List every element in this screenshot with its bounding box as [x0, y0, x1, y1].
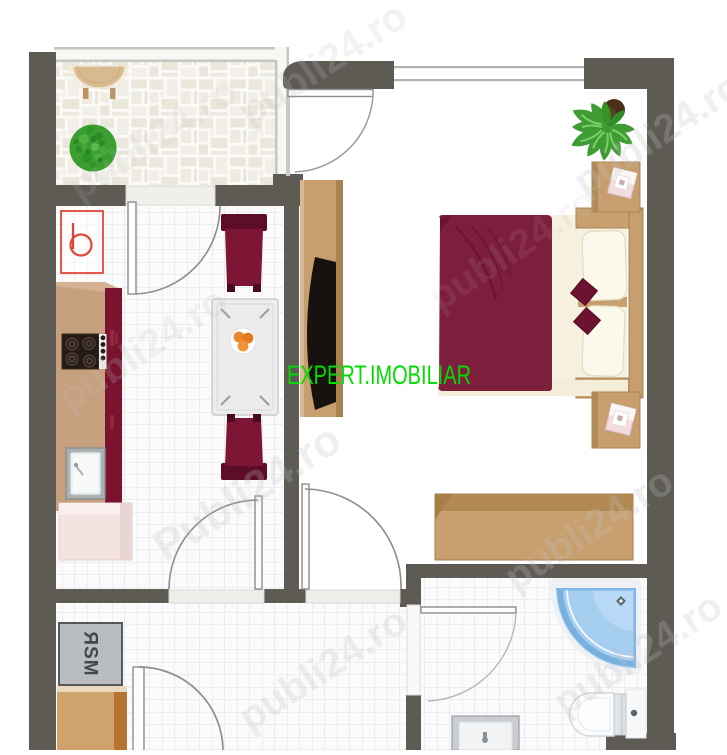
svg-text:ЯSM: ЯSM: [80, 631, 101, 676]
svg-text:EXPERT.IMOBILIAR: EXPERT.IMOBILIAR: [287, 360, 471, 390]
